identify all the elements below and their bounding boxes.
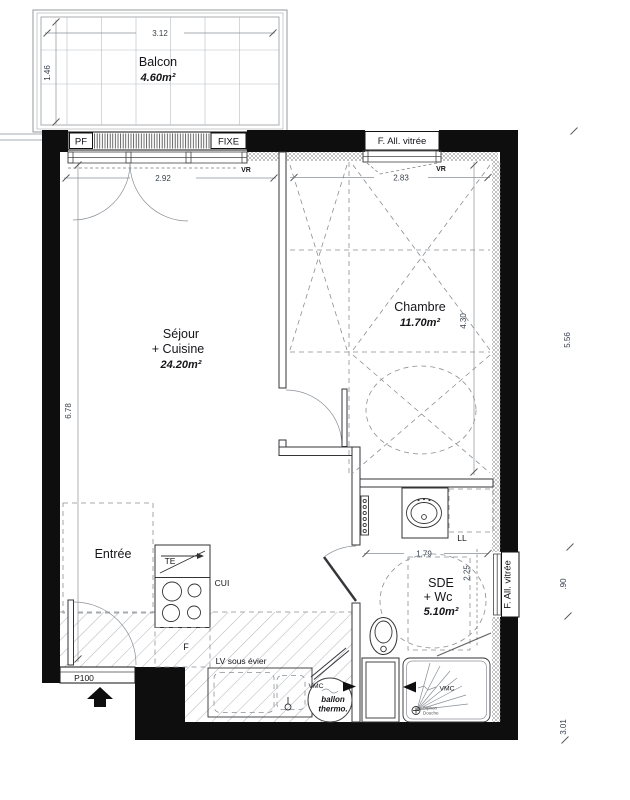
bedroom-window-dim-text: 2.83 [393, 174, 409, 183]
tall-cabinet-icon: TE [155, 545, 210, 578]
vmc-kitchen-label: VMC [308, 683, 323, 690]
right-window-dim: .90 [559, 578, 568, 590]
bathroom-door [324, 546, 356, 601]
toilet-icon [362, 618, 399, 723]
bathroom: LL 1.79 2.25 SDE + Wc 5.10m² [361, 488, 493, 722]
water-heater-label2: thermo. [318, 705, 347, 714]
bathroom-window: F. All. vitrée [494, 552, 520, 617]
balcony-area: 4.60m² [140, 72, 176, 84]
water-heater-label1: ballon [321, 695, 345, 704]
bedroom-west-wall [279, 152, 286, 388]
balcony-width-text: 3.12 [152, 29, 168, 38]
living-room-label2: + Cuisine [152, 342, 205, 356]
bedroom-label: Chambre [394, 300, 445, 314]
vmc-arrow2-icon [403, 682, 416, 693]
bedroom-depth-dim: 4.30 [459, 162, 478, 476]
bathroom-label: SDE [428, 576, 454, 590]
vmc-shower-label: VMC [439, 686, 454, 693]
bedroom-window-label: F. All. vitrée [378, 136, 427, 147]
bathroom-label2: + Wc [424, 590, 453, 604]
bathroom-window-label: F. All. vitrée [503, 560, 514, 609]
entry-door-label: P100 [74, 673, 94, 683]
washing-machine-slot: LL [449, 489, 493, 543]
bedroom-area: 11.70m² [400, 317, 440, 329]
living-room-area: 24.20m² [160, 359, 202, 371]
living-room-label: Séjour [163, 327, 199, 341]
vr-right-label: VR [436, 166, 446, 173]
balcony-door-swing-right [130, 163, 188, 221]
sejour-depth-dim: 6.78 [64, 162, 82, 663]
shower-screen [437, 633, 491, 656]
right-bottom-dim: 3.01 [559, 719, 568, 735]
bedroom-door [286, 389, 347, 447]
cui-label: CUI [215, 578, 230, 588]
balcony-door-swing-left [73, 163, 130, 220]
lv-label: LV sous évier [216, 656, 267, 666]
bedroom-depth-text: 4.30 [459, 313, 468, 329]
te-label: TE [165, 556, 176, 566]
cooktop-icon [155, 578, 210, 628]
balcony-depth-text: 1.46 [43, 65, 52, 81]
fridge-label: F [183, 642, 189, 652]
exterior-stub-lines [0, 134, 42, 140]
balcony-label: Balcon [139, 55, 177, 69]
floor-plan-drawing: 3.12 1.46 Balcon 4.60m² [0, 0, 630, 800]
sejour-depth-text: 6.78 [64, 403, 73, 419]
right-top-dim: 5.56 [563, 332, 572, 348]
bathroom-west-wall [352, 447, 360, 545]
pf-label: PF [75, 137, 87, 148]
siphon-label2: Douche [423, 711, 439, 716]
entry-arrow-icon [87, 687, 113, 707]
bathroom-area: 5.10m² [424, 606, 459, 618]
fixe-label: FIXE [218, 137, 239, 148]
living-room-window: PF FIXE VR 2.92 [63, 132, 278, 221]
floor-plan: 3.12 1.46 Balcon 4.60m² [0, 0, 630, 800]
entry-label: Entrée [95, 547, 132, 561]
bedroom-window-dim: 2.83 [290, 174, 492, 183]
right-dimension-annotations: 5.56 .90 3.01 [559, 128, 578, 744]
ll-label: LL [457, 533, 467, 543]
bedroom-south-wall [360, 479, 493, 487]
towel-radiator-icon [361, 496, 369, 535]
balcony: 3.12 1.46 Balcon 4.60m² [33, 10, 287, 132]
balcony-width-dim: 3.12 [44, 29, 277, 38]
vr-left-label: VR [241, 167, 251, 174]
sejour-window-dim-text: 2.92 [155, 174, 171, 183]
sejour-window-dim: 2.92 [63, 174, 278, 183]
corridor-wall [279, 447, 360, 456]
washbasin-icon [402, 488, 448, 538]
bedroom: 4.30 Chambre 11.70m² [290, 162, 490, 476]
shower-icon: Siphon Douche VMC [403, 658, 490, 722]
